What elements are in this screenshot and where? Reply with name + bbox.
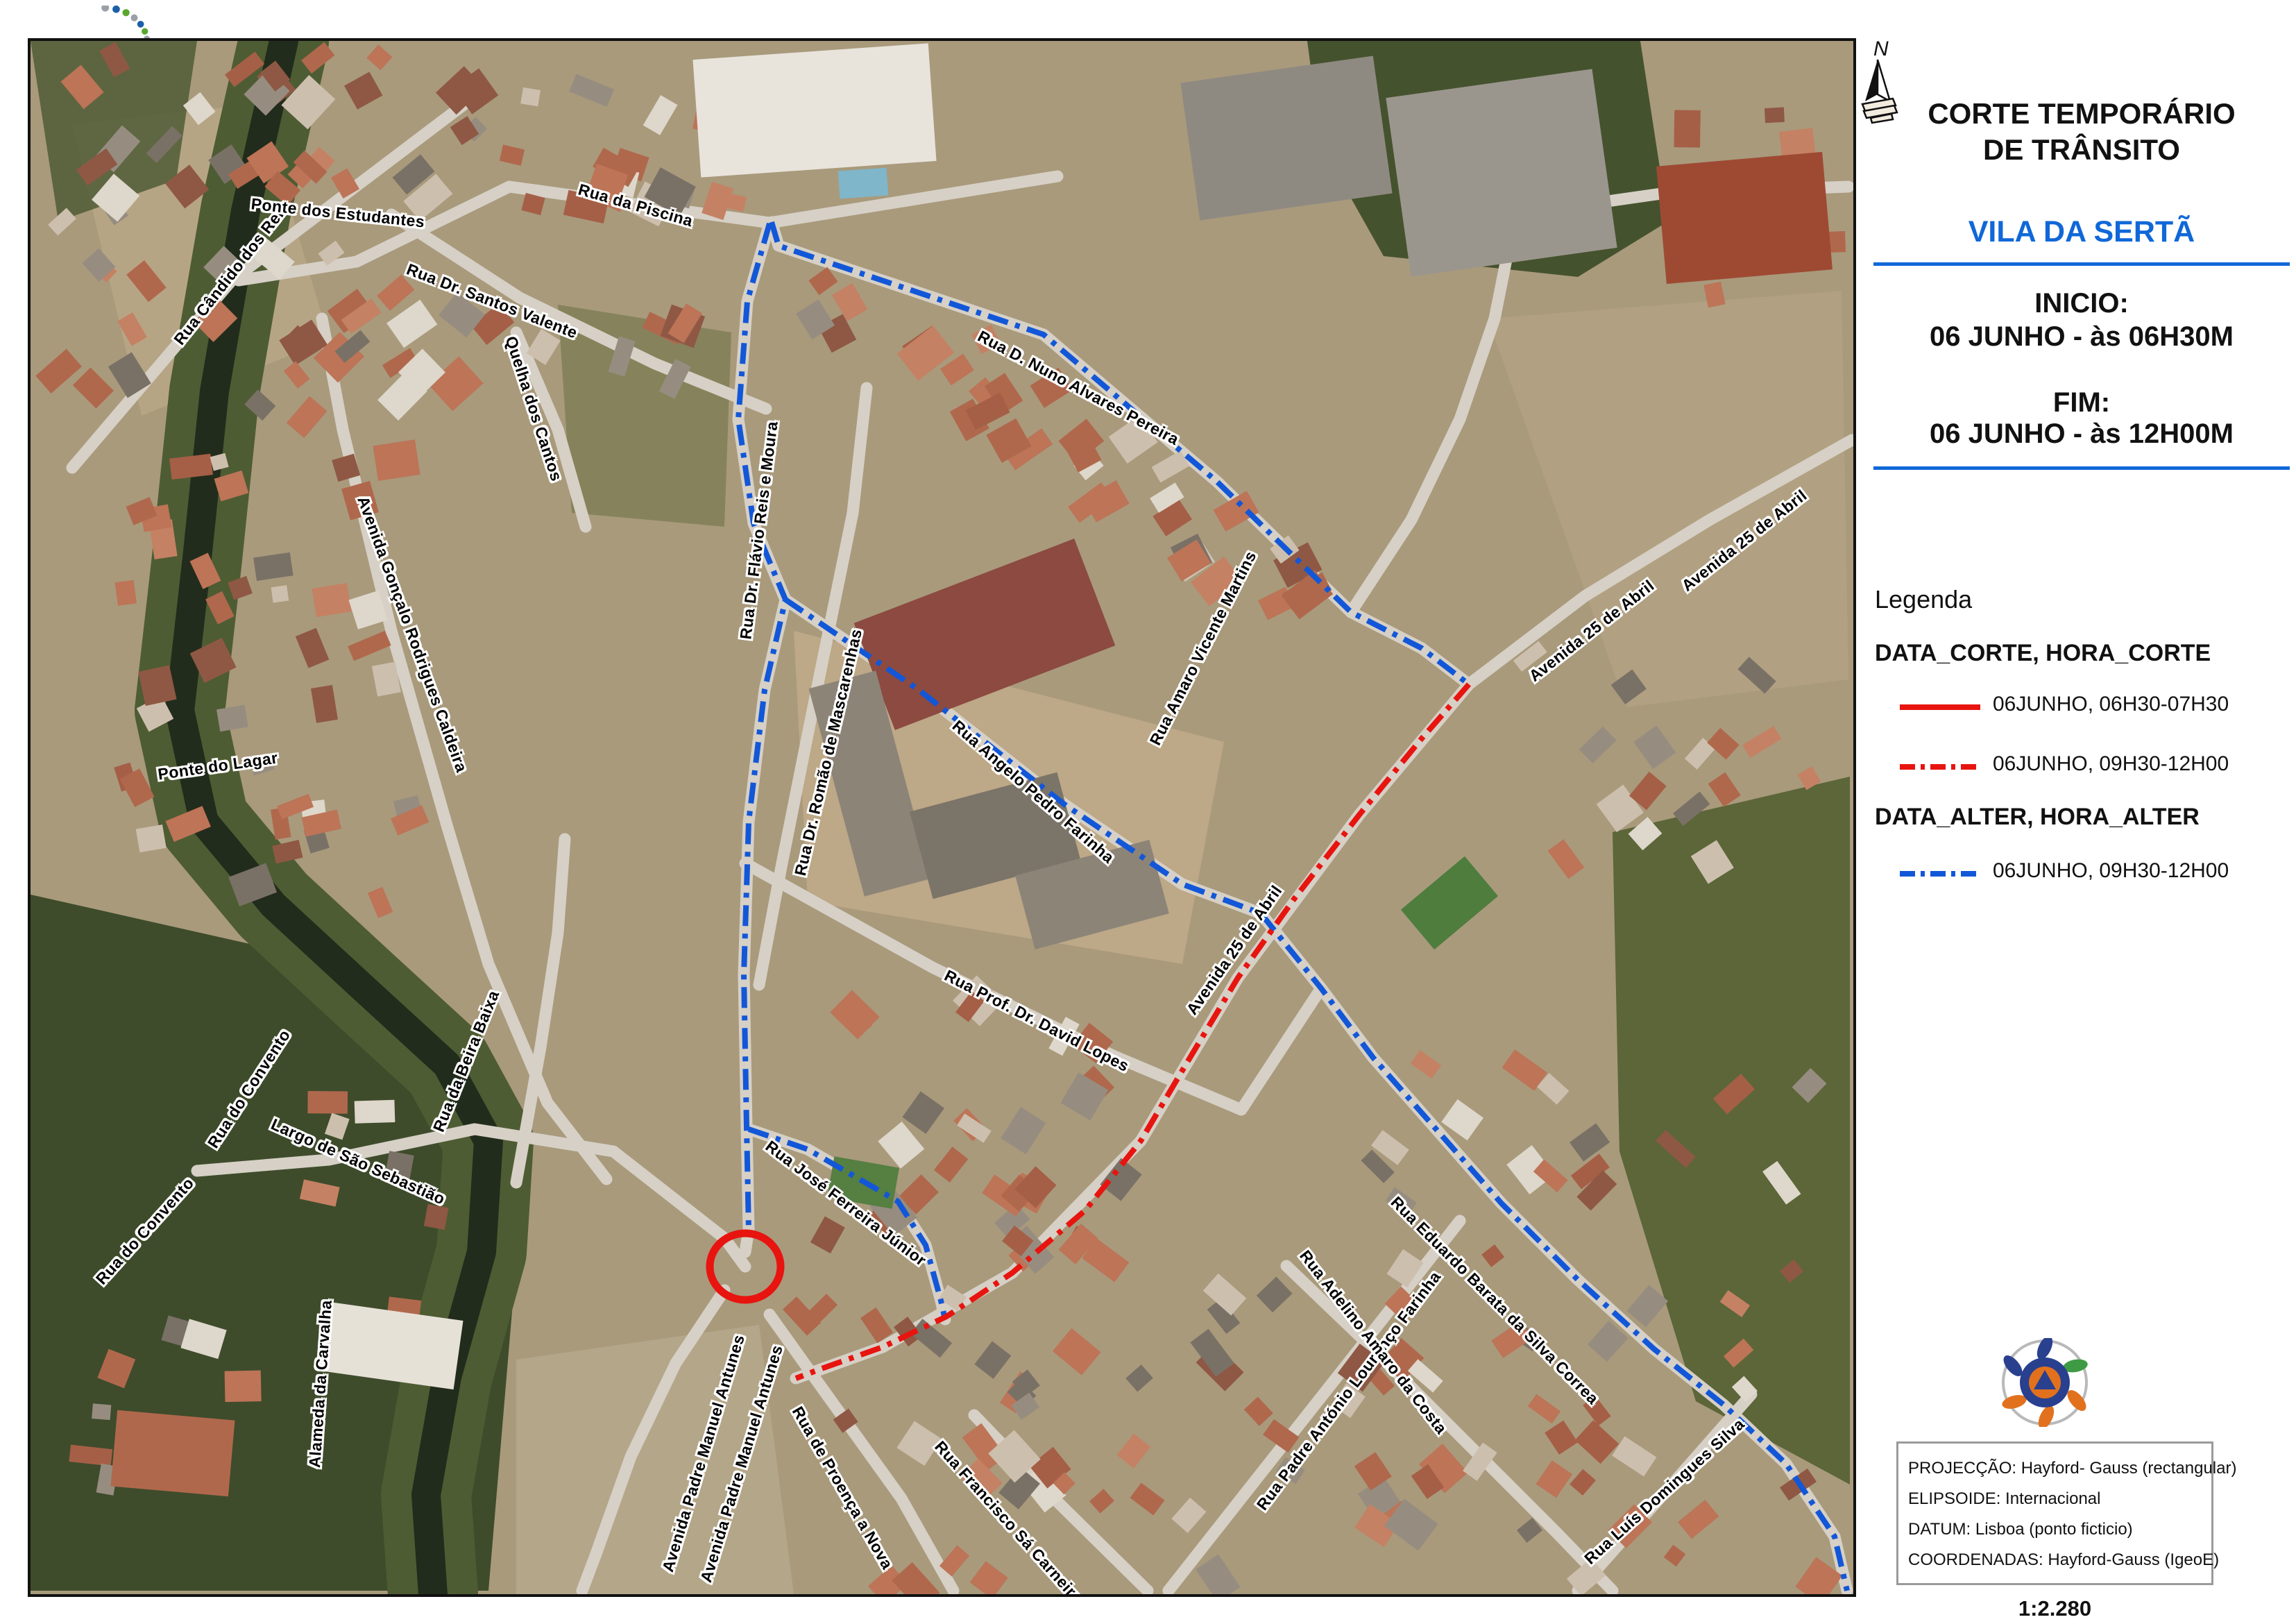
satellite-map [31,41,1853,1594]
page-title: CORTE TEMPORÁRIO DE TRÂNSITO [1873,96,2290,168]
title-line1: CORTE TEMPORÁRIO [1873,96,2290,132]
legend-group-alter: DATA_ALTER, HORA_ALTER [1875,804,2200,831]
inicio-value: 06 JUNHO - às 06H30M [1873,321,2290,353]
ellipsoid-line: ELIPSOIDE: Internacional [1908,1484,2202,1514]
legend-swatch-blue-dashdot [1898,869,1982,879]
map-scale: 1:2.280 [1896,1596,2213,1621]
legend-swatch-red-solid [1898,702,1982,712]
legend-label-red-solid: 06JUNHO, 06H30-07H30 [1993,693,2229,716]
fim-label: FIM: [1873,387,2290,418]
north-label: N [1873,37,1889,61]
title-line2: DE TRÂNSITO [1873,132,2290,168]
legend-label-blue-dashdot: 06JUNHO, 09H30-12H00 [1993,859,2229,883]
projection-info-box: PROJECÇÃO: Hayford- Gauss (rectangular) … [1896,1441,2213,1585]
legend-swatch-red-dashdot [1898,762,1982,772]
coordinates-line: COORDENADAS: Hayford-Gauss (IgeoE) [1908,1545,2202,1575]
location-title: VILA DA SERTÃ [1873,215,2290,249]
fim-value: 06 JUNHO - às 12H00M [1873,418,2290,450]
legend-title: Legenda [1875,585,1972,614]
civil-protection-logo [2000,1338,2089,1427]
traffic-closure-notice: sertãmunicípio no coração do país, mais … [0,0,2296,1624]
inicio-label: INICIO: [1873,288,2290,319]
divider-top [1873,262,2290,266]
divider-bottom [1873,466,2290,470]
legend-group-corte: DATA_CORTE, HORA_CORTE [1875,640,2211,667]
datum-line: DATUM: Lisboa (ponto ficticio) [1908,1514,2202,1545]
legend-label-red-dashdot: 06JUNHO, 09H30-12H00 [1993,752,2229,776]
map-canvas: Rua Cândido dos ReisRua Dr. Santos Valen… [28,38,1856,1597]
projection-line: PROJECÇÃO: Hayford- Gauss (rectangular) [1908,1453,2202,1484]
